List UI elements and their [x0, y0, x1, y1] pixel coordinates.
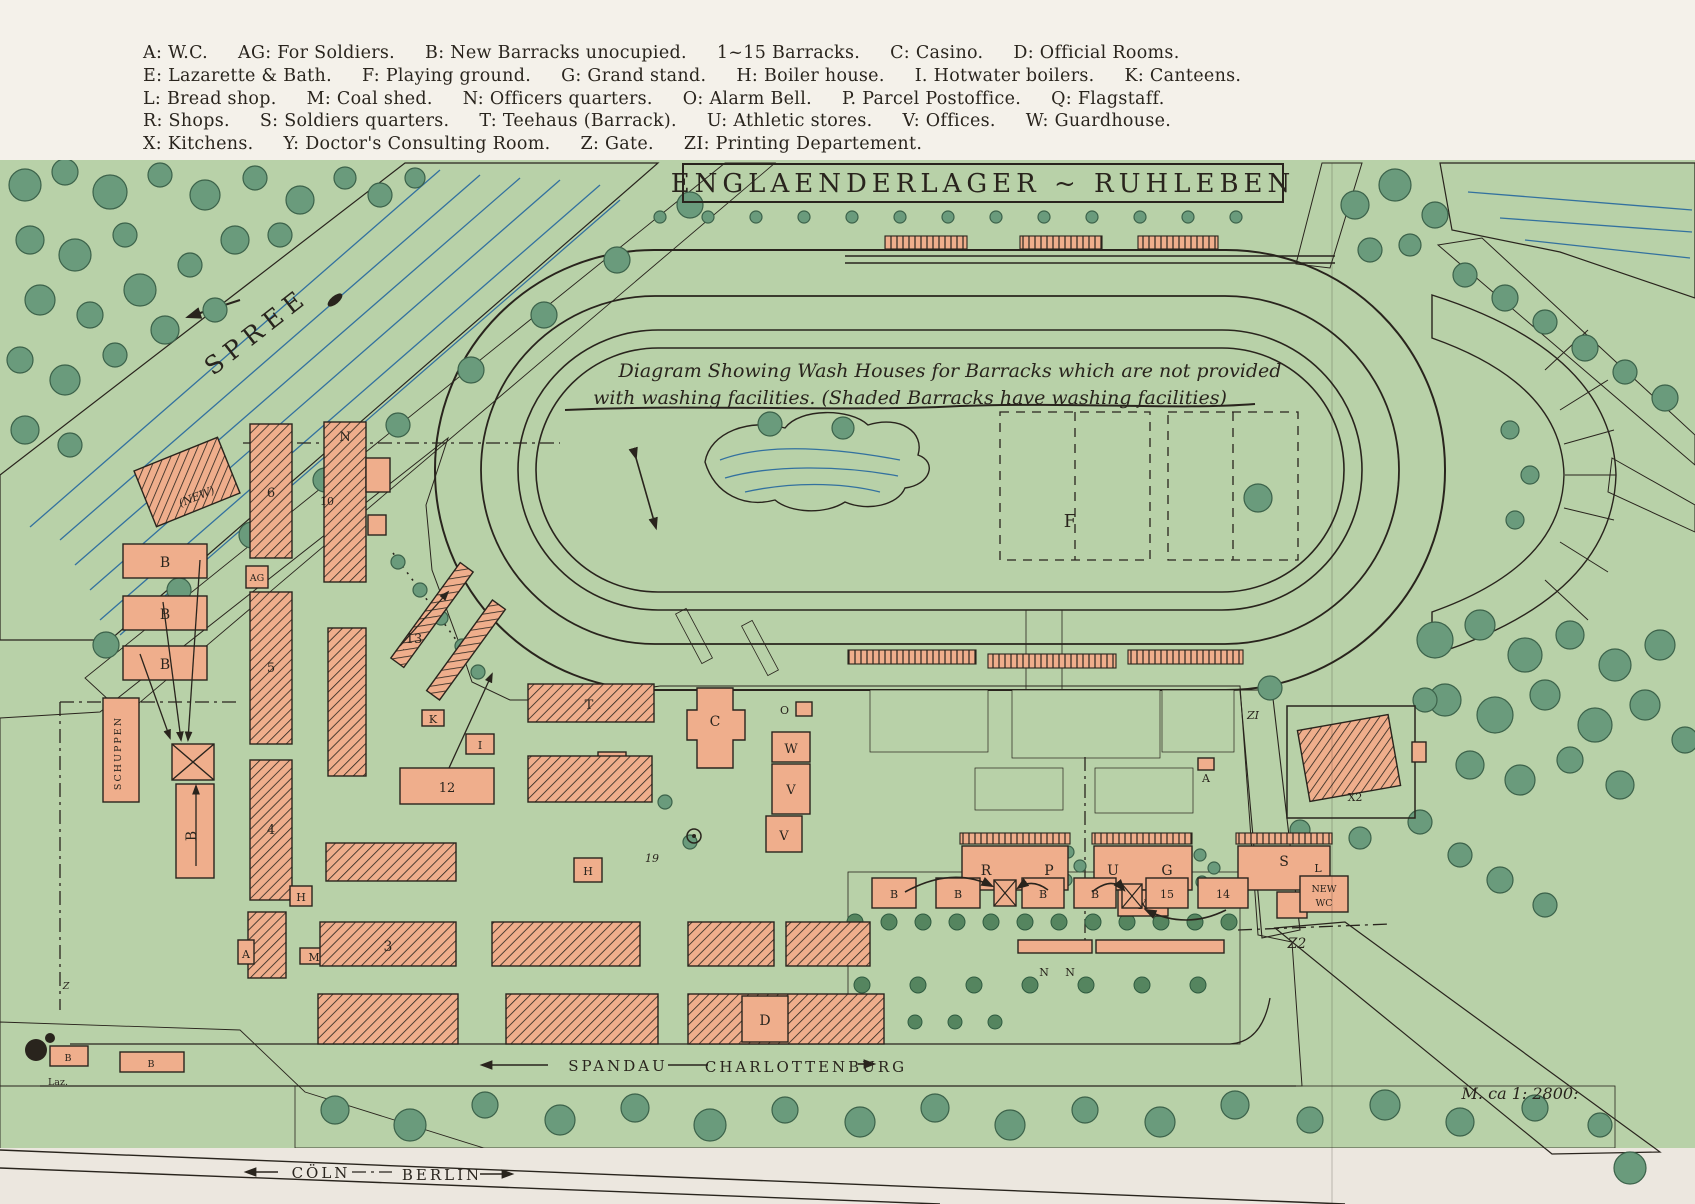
tree: [1182, 211, 1194, 223]
tree: [1453, 263, 1477, 287]
tree: [148, 163, 172, 187]
tree: [124, 274, 156, 306]
tree: [1446, 1108, 1474, 1136]
tree: [16, 226, 44, 254]
legend-line: X: Kitchens.Y: Doctor's Consulting Room.…: [143, 133, 1665, 156]
tree: [1533, 310, 1557, 334]
bush: [915, 914, 931, 930]
bush: [983, 914, 999, 930]
flagstaff-q-dot: [692, 834, 696, 838]
legend-entry: P. Parcel Postoffice.: [842, 89, 1021, 109]
roof-ticks: [1236, 833, 1332, 844]
wash-house-cross-east1: [994, 880, 1016, 906]
tree: [178, 253, 202, 277]
legend-entry: X: Kitchens.: [143, 134, 253, 154]
barrack-row-a: [326, 843, 456, 881]
tree: [1370, 1090, 1400, 1120]
legend-entry: E: Lazarette & Bath.: [143, 66, 332, 86]
tree: [1672, 727, 1695, 753]
svg-text:4: 4: [267, 823, 275, 838]
tree: [1588, 1113, 1612, 1137]
building-official-d: D: [688, 994, 884, 1044]
map-title: ENGLAENDERLAGER ~ RUHLEBEN: [671, 169, 1296, 199]
tree: [1508, 638, 1542, 672]
building-new-barrack-b4: B: [176, 784, 214, 878]
tree: [1349, 827, 1371, 849]
tree: [11, 416, 39, 444]
svg-text:B: B: [148, 1059, 155, 1070]
legend-entry: V: Offices.: [903, 111, 996, 131]
legend-entry: Q: Flagstaff.: [1051, 89, 1164, 109]
tree: [471, 665, 485, 679]
grandstand-strip: [1128, 650, 1243, 664]
svg-text:AG: AG: [249, 573, 264, 584]
tree: [702, 211, 714, 223]
legend-entry: L: Bread shop.: [143, 89, 277, 109]
tree: [990, 211, 1002, 223]
legend-line: L: Bread shop.M: Coal shed.N: Officers q…: [143, 88, 1665, 111]
tree: [1399, 234, 1421, 256]
lawn: [1095, 768, 1193, 813]
svg-text:N: N: [339, 430, 350, 445]
tree: [1145, 1107, 1175, 1137]
legend-entry: N: Officers quarters.: [463, 89, 653, 109]
ink-blot: [25, 1039, 47, 1061]
legend-entry: H: Boiler house.: [736, 66, 884, 86]
barrack-row-c: [318, 994, 458, 1044]
svg-text:Diagram Showing Wash Houses fo: Diagram Showing Wash Houses for Barracks…: [618, 360, 1282, 382]
building-new-barrack-b1: B: [123, 544, 207, 578]
svg-text:U: U: [1107, 863, 1119, 879]
tree: [1533, 893, 1557, 917]
svg-text:SPANDAU: SPANDAU: [568, 1057, 667, 1075]
tree: [334, 167, 356, 189]
hotwater-i: I: [466, 734, 494, 754]
tree: [103, 343, 127, 367]
tree: [1134, 211, 1146, 223]
svg-text:B: B: [184, 831, 200, 841]
svg-text:H: H: [296, 891, 306, 904]
svg-text:O: O: [780, 704, 789, 717]
bush: [1051, 914, 1067, 930]
tree: [1072, 1097, 1098, 1123]
tree: [286, 186, 314, 214]
tree: [921, 1094, 949, 1122]
bush: [1078, 977, 1094, 993]
small-building: [366, 458, 390, 492]
bush: [908, 1015, 922, 1029]
legend-entry: W: Guardhouse.: [1026, 111, 1171, 131]
tree: [1505, 765, 1535, 795]
ink-blot: [45, 1033, 55, 1043]
svg-text:Laz.: Laz.: [48, 1077, 68, 1088]
svg-text:T: T: [585, 698, 594, 713]
tree: [1456, 751, 1484, 779]
tree: [1417, 622, 1453, 658]
boiler-house-h-east: H: [574, 858, 602, 882]
svg-text:X2: X2: [1348, 791, 1363, 804]
barrack-3: 3: [320, 922, 456, 966]
tree: [1501, 421, 1519, 439]
legend-entry: AG: For Soldiers.: [238, 43, 395, 63]
stable-building: [1020, 236, 1102, 249]
tree: [846, 211, 858, 223]
svg-text:B: B: [160, 555, 170, 571]
tree: [1297, 1107, 1323, 1133]
roof-ticks: [1092, 833, 1192, 844]
tree: [405, 168, 425, 188]
tree: [1652, 385, 1678, 411]
svg-text:P: P: [1044, 863, 1053, 879]
canteen-k: K: [422, 710, 444, 726]
barrack-row-b: [786, 922, 870, 966]
tree: [798, 211, 810, 223]
building-guardhouse-w: W: [772, 732, 810, 762]
svg-text:B: B: [890, 888, 898, 901]
svg-text:S: S: [1279, 854, 1289, 870]
barrack-4: 4: [250, 760, 292, 900]
svg-text:15: 15: [1160, 888, 1174, 901]
svg-text:C: C: [710, 714, 721, 730]
tree: [1230, 211, 1242, 223]
tree: [151, 316, 179, 344]
tree: [1614, 1152, 1646, 1184]
tree: [1487, 867, 1513, 893]
tree: [995, 1110, 1025, 1140]
svg-text:3: 3: [384, 939, 393, 955]
bush: [1134, 977, 1150, 993]
legend-line: R: Shops.S: Soldiers quarters.T: Teehaus…: [143, 110, 1665, 133]
tree: [1258, 676, 1282, 700]
tree: [9, 169, 41, 201]
tree: [1448, 843, 1472, 867]
bush: [1221, 914, 1237, 930]
svg-text:I: I: [478, 739, 482, 752]
bush: [910, 977, 926, 993]
legend-entry: S: Soldiers quarters.: [260, 111, 450, 131]
legend-entry: R: Shops.: [143, 111, 230, 131]
alarm-bell-o: O: [780, 702, 812, 717]
legend-line: E: Lazarette & Bath.F: Playing ground.G:…: [143, 65, 1665, 88]
bush: [1190, 977, 1206, 993]
legend-entry: T: Teehaus (Barrack).: [479, 111, 676, 131]
tree: [1413, 688, 1437, 712]
svg-text:SCHUPPEN: SCHUPPEN: [113, 716, 124, 790]
tree: [1086, 211, 1098, 223]
svg-text:CHARLOTTENBURG: CHARLOTTENBURG: [705, 1058, 907, 1076]
svg-text:K: K: [429, 713, 438, 726]
tree: [321, 1096, 349, 1124]
bush: [966, 977, 982, 993]
legend-entry: C: Casino.: [890, 43, 983, 63]
tree: [58, 433, 82, 457]
barrack-row-b: [492, 922, 640, 966]
tree: [25, 285, 55, 315]
grandstand-strip: [848, 650, 976, 664]
svg-text:WC: WC: [1315, 898, 1332, 909]
svg-text:B: B: [954, 888, 962, 901]
tree: [59, 239, 91, 271]
svg-text:N: N: [1039, 966, 1049, 979]
tree: [772, 1097, 798, 1123]
tree: [1221, 1091, 1249, 1119]
legend-entry: A: W.C.: [143, 43, 208, 63]
tree: [1194, 849, 1206, 861]
map-page: A: W.C.AG: For Soldiers.B: New Barracks …: [0, 0, 1695, 1204]
bush: [948, 1015, 962, 1029]
svg-text:CÖLN: CÖLN: [292, 1164, 351, 1182]
tree: [50, 365, 80, 395]
tree: [1578, 708, 1612, 742]
svg-text:B: B: [1039, 888, 1047, 901]
barrack-row-b: [688, 922, 774, 966]
tree: [113, 223, 137, 247]
tree: [458, 357, 484, 383]
svg-text:W: W: [784, 742, 798, 757]
svg-text:12: 12: [439, 781, 456, 796]
tree: [1606, 771, 1634, 799]
tree: [658, 795, 672, 809]
barrack-mid: [528, 756, 652, 802]
tree: [93, 632, 119, 658]
tree: [1408, 810, 1432, 834]
building-new-wc: NEW WC: [1300, 876, 1348, 912]
tree: [386, 413, 410, 437]
legend-entry: I. Hotwater boilers.: [915, 66, 1095, 86]
legend-entry: ZI: Printing Departement.: [684, 134, 922, 154]
gate-z-label: Z: [62, 981, 70, 992]
legend-entry: D: Official Rooms.: [1013, 43, 1179, 63]
wash-house-cross: [172, 744, 214, 780]
building-teehaus-t: T: [528, 684, 654, 722]
tree: [654, 211, 666, 223]
legend-entry: G: Grand stand.: [561, 66, 706, 86]
tree: [1557, 747, 1583, 773]
tree: [1038, 211, 1050, 223]
map-canvas: SPREE: [0, 160, 1695, 1204]
tree: [394, 1109, 426, 1141]
handwritten-note: 19: [645, 852, 659, 865]
tree: [52, 160, 78, 185]
legend-entry: O: Alarm Bell.: [683, 89, 812, 109]
tree: [368, 183, 392, 207]
lawn: [1162, 690, 1234, 752]
tree: [942, 211, 954, 223]
wash-house-cross-east2: [1122, 884, 1142, 908]
tree: [1530, 680, 1560, 710]
svg-text:L: L: [1314, 862, 1322, 875]
legend-entry: M: Coal shed.: [307, 89, 433, 109]
tree: [1572, 335, 1598, 361]
svg-text:A: A: [1201, 772, 1211, 785]
building-offices-v1: V: [772, 764, 810, 814]
title-box: ENGLAENDERLAGER ~ RUHLEBEN: [671, 164, 1296, 202]
legend-entry: B: New Barracks unocupied.: [425, 43, 687, 63]
tree: [545, 1105, 575, 1135]
svg-text:14: 14: [1216, 888, 1230, 901]
tree: [1074, 860, 1086, 872]
tree: [190, 180, 220, 210]
gate-z2-label: Z2: [1287, 936, 1307, 952]
svg-text:A: A: [241, 948, 251, 961]
building-officers-n: N 10: [320, 422, 366, 582]
svg-text:10: 10: [320, 495, 334, 508]
field-f-label: F: [1064, 511, 1077, 532]
roof-ticks: [960, 833, 1070, 844]
svg-text:D: D: [759, 1013, 770, 1029]
building-offices-v2: V: [766, 816, 802, 852]
tree: [1244, 484, 1272, 512]
tree: [77, 302, 103, 328]
stable-building: [885, 236, 967, 249]
tree: [1341, 191, 1369, 219]
tree: [472, 1092, 498, 1118]
legend-entry: F: Playing ground.: [362, 66, 531, 86]
svg-text:B: B: [65, 1053, 72, 1064]
bush: [1017, 914, 1033, 930]
legend-line: A: W.C.AG: For Soldiers.B: New Barracks …: [143, 42, 1665, 65]
grandstand-strip: [988, 654, 1116, 668]
wc-a-box: A: [238, 940, 254, 964]
tree: [1358, 238, 1382, 262]
building-schuppen: SCHUPPEN: [103, 698, 139, 802]
tree: [391, 555, 405, 569]
bush: [1187, 914, 1203, 930]
legend-entry: 1~15 Barracks.: [717, 43, 860, 63]
svg-text:N: N: [1065, 966, 1075, 979]
building-12: 12: [400, 768, 494, 804]
svg-text:BERLIN: BERLIN: [402, 1166, 482, 1184]
tree: [531, 302, 557, 328]
svg-text:6: 6: [267, 486, 275, 501]
svg-text:5: 5: [267, 661, 275, 676]
tree: [1521, 466, 1539, 484]
barrack-strip: [328, 628, 366, 776]
svg-text:ZI: ZI: [1246, 709, 1260, 722]
tree: [621, 1094, 649, 1122]
lawn: [870, 690, 988, 752]
svg-text:R: R: [981, 863, 992, 879]
tree: [93, 175, 127, 209]
bush: [988, 1015, 1002, 1029]
tree: [1422, 202, 1448, 228]
map-legend: A: W.C.AG: For Soldiers.B: New Barracks …: [0, 0, 1695, 160]
lawn: [975, 768, 1063, 810]
tree: [1630, 690, 1660, 720]
tree: [1613, 360, 1637, 384]
tree: [604, 247, 630, 273]
barrack-row-c: [506, 994, 658, 1044]
tree: [1208, 862, 1220, 874]
svg-text:M: M: [308, 951, 319, 964]
tree: [894, 211, 906, 223]
scale-label: M. ca 1: 2800:: [1461, 1084, 1579, 1103]
barrack-5: 5: [250, 592, 292, 744]
tree: [1645, 630, 1675, 660]
tree: [1599, 649, 1631, 681]
tree: [268, 223, 292, 247]
railway-band: [0, 1148, 1695, 1204]
boiler-house-h-west: H: [290, 886, 312, 906]
tree: [694, 1109, 726, 1141]
bush: [949, 914, 965, 930]
tree: [1556, 621, 1584, 649]
bush: [881, 914, 897, 930]
svg-text:B: B: [160, 657, 170, 673]
tree: [845, 1107, 875, 1137]
legend-entry: K: Canteens.: [1125, 66, 1242, 86]
svg-text:H: H: [583, 865, 593, 878]
tree: [243, 166, 267, 190]
legend-entry: Y: Doctor's Consulting Room.: [283, 134, 550, 154]
tree: [221, 226, 249, 254]
svg-text:G: G: [1161, 863, 1172, 879]
tree: [1492, 285, 1518, 311]
bush: [854, 977, 870, 993]
stable-building: [1138, 236, 1218, 249]
tree: [1506, 511, 1524, 529]
legend-entry: Z: Gate.: [581, 134, 654, 154]
svg-text:V: V: [785, 783, 796, 798]
small-building: [368, 515, 386, 535]
legend-entry: U: Athletic stores.: [707, 111, 873, 131]
ag-box-left: AG: [246, 566, 268, 588]
tree: [1379, 169, 1411, 201]
tree: [413, 583, 427, 597]
lawn: [1012, 690, 1160, 758]
tree: [1477, 697, 1513, 733]
tree: [203, 298, 227, 322]
svg-text:V: V: [778, 829, 789, 844]
barrack-6: 6: [250, 424, 292, 558]
tree: [750, 211, 762, 223]
barrack-13-label: 13: [406, 632, 423, 647]
tree: [7, 347, 33, 373]
bush: [1022, 977, 1038, 993]
bush: [1085, 914, 1101, 930]
tree: [1465, 610, 1495, 640]
